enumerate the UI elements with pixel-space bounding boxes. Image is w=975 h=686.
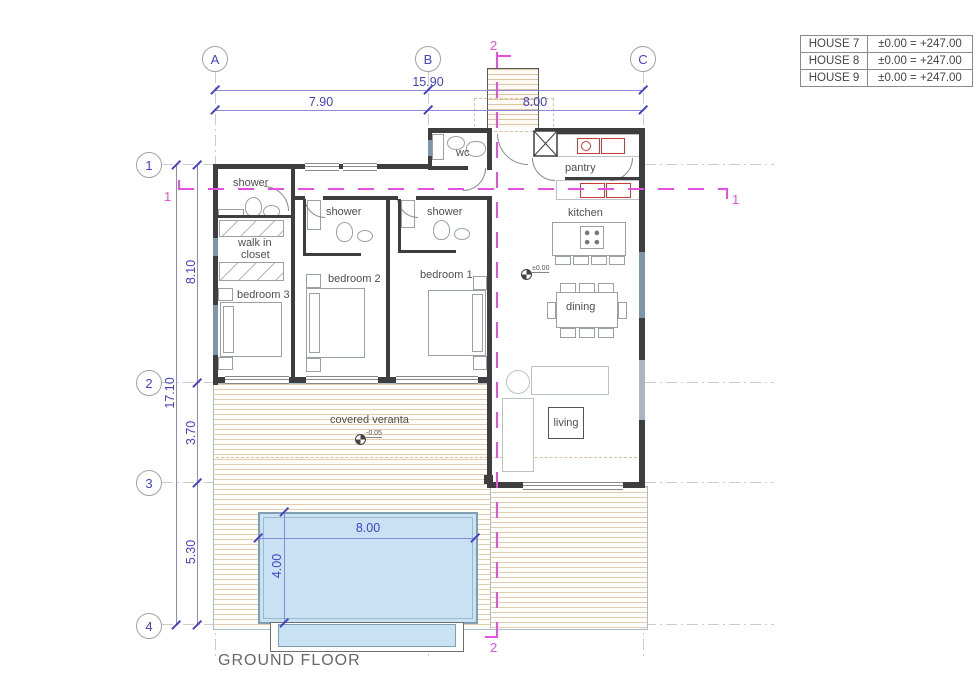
section-line-2 [496,52,498,640]
shower-1-toilet [245,197,262,217]
wall-corridor-c [416,196,488,200]
grid-number-4: 4 [145,619,152,634]
level-marker-interior [521,269,532,280]
houses-level-table: HOUSE 7 ±0.00 = +247.00 HOUSE 8 ±0.00 = … [800,35,973,87]
level-marker-veranda [355,434,366,445]
window-bedroom3-west [213,305,218,355]
bed-1-nightstand-bottom [473,356,487,370]
side-table-round [506,370,530,394]
table-row: HOUSE 8 ±0.00 = +247.00 [801,53,972,70]
dim-top-ab: 7.90 [309,95,333,109]
dim-left-total: 17.10 [163,377,177,408]
wall-ensuite2-left [303,199,306,256]
dim-pool-width: 8.00 [356,521,380,535]
wc-label: wc [456,147,469,159]
level-value-veranda: -0.05 [366,430,382,438]
wall-wc-bottom [428,166,468,170]
dining-chair [598,283,614,293]
dining-chair [560,283,576,293]
kitchen-label: kitchen [568,207,603,219]
veranda-corner-post [484,475,493,484]
dimline-pool-width [258,538,475,539]
wardrobe-top [219,220,284,237]
window-closet-west [213,238,218,256]
island-stool [555,256,571,265]
kitchen-cooktop-counter [606,183,631,198]
dim-left-23: 3.70 [184,421,198,445]
wc-counter [432,134,444,160]
house-name: HOUSE 8 [801,53,868,69]
wall-shower1-bottom [213,215,295,218]
pantry-label: pantry [565,162,596,174]
section-label-1-right: 1 [732,192,739,207]
bed-3-nightstand-bottom [218,357,233,370]
grid-letter-c: C [638,52,647,67]
house-name: HOUSE 7 [801,36,868,52]
veranda-roof-edge [216,457,642,458]
dining-chair [560,328,576,338]
section-label-2-top: 2 [490,38,497,53]
shower-3-toilet [433,220,450,240]
window-living-east [639,360,645,420]
wall-ensuite3-bottom [398,250,456,253]
shower-2-toilet [336,222,353,242]
grid-number-2: 2 [145,376,152,391]
island-stool [609,256,625,265]
level-value-interior: ±0.00 [532,265,549,273]
grid-letter-a: A [211,52,220,67]
walk-in-label-2: closet [241,249,270,261]
slider-living [523,482,623,490]
pool-step-inner [278,624,456,647]
house-level: ±0.00 = +247.00 [868,36,972,52]
section-line-1 [178,188,728,190]
house-level: ±0.00 = +247.00 [868,70,972,86]
wall-divider-bedrooms [386,196,390,383]
pantry-appliance-drum [581,141,591,151]
dining-chair [618,302,627,319]
dim-left-34: 5.30 [184,540,198,564]
grid-bubble-4: 4 [136,613,162,639]
shower-3-sink [454,228,470,240]
column-x [533,130,558,157]
shower-3-label: shower [427,206,462,218]
section-line-2-jog-bottom [485,636,498,638]
floor-plan-canvas: living shower walk in closet bedroom [0,0,975,686]
house-name: HOUSE 9 [801,70,868,86]
dimline-pool-height [284,512,285,623]
wardrobe-bottom [219,262,284,281]
island-stool [591,256,607,265]
section-label-1-left: 1 [164,189,171,204]
wall-wc-top [428,128,492,133]
bed-1-pillow [472,294,483,352]
sofa-top [531,366,609,395]
section-line-1-jog-left [178,180,180,190]
wall-corridor-b [323,196,398,200]
sofa-left [502,398,534,472]
dining-chair [598,328,614,338]
slider-bedroom-2 [306,376,378,384]
wall-ensuite3-left [398,199,401,253]
island-stool [573,256,589,265]
grid-number-1: 1 [145,158,152,173]
dim-top-bc: 8.00 [523,95,547,109]
dining-chair [547,302,556,319]
section-line-1-jog-right [726,188,728,199]
bed-2-pillow [309,293,320,353]
grid-letter-b: B [424,52,433,67]
living-label: living [553,417,578,429]
veranda-label: covered veranta [330,414,409,426]
drawing-title: GROUND FLOOR [218,652,361,670]
slider-bedroom-3 [225,376,289,384]
dim-left-12: 8.10 [184,260,198,284]
section-label-2-bottom: 2 [490,640,497,655]
window-top-2 [343,163,377,171]
bed-1-nightstand-top [473,276,487,290]
dimline-top-total [215,90,643,91]
dimline-top-segments [215,110,643,111]
grid-bubble-b: B [415,46,441,72]
dining-chair [579,328,595,338]
wall-ensuite2-bottom [303,253,361,256]
bed-2-nightstand-top [306,274,321,288]
bedroom-1-label: bedroom 1 [420,269,473,281]
grid-bubble-1: 1 [136,152,162,178]
bedroom-2-label: bedroom 2 [328,273,381,285]
pantry-appliance-2 [601,138,625,154]
wall-kitchen-pantry [565,177,640,180]
table-row: HOUSE 7 ±0.00 = +247.00 [801,36,972,53]
wall-rightwing-left [487,196,492,488]
island-cooktop [580,226,604,249]
grid-number-3: 3 [145,476,152,491]
table-row: HOUSE 9 ±0.00 = +247.00 [801,70,972,86]
section-line-2-jog-top [498,55,511,57]
dim-pool-height: 4.00 [270,554,284,578]
grid-bubble-2: 2 [136,370,162,396]
grid-bubble-a: A [202,46,228,72]
window-wc-west [428,140,432,156]
grid-bubble-c: C [630,46,656,72]
bed-3-pillow [223,306,234,353]
pool-deck-right [490,486,648,630]
wall-wc-right [487,128,492,170]
shower-2-sink [357,230,373,242]
dining-label: dining [566,301,595,313]
walk-in-label-1: walk in [238,237,272,249]
shower-2-label: shower [326,206,361,218]
bed-3-nightstand-top [218,288,233,301]
window-dining-east [639,252,645,318]
house-level: ±0.00 = +247.00 [868,53,972,69]
bed-2-nightstand-bottom [306,358,321,372]
bedroom-3-label: bedroom 3 [237,289,290,301]
living-label-box: living [548,407,584,439]
kitchen-sink [580,183,605,198]
slider-bedroom-1 [396,376,478,384]
dining-chair [579,283,595,293]
grid-bubble-3: 3 [136,470,162,496]
window-top-1 [305,163,339,171]
